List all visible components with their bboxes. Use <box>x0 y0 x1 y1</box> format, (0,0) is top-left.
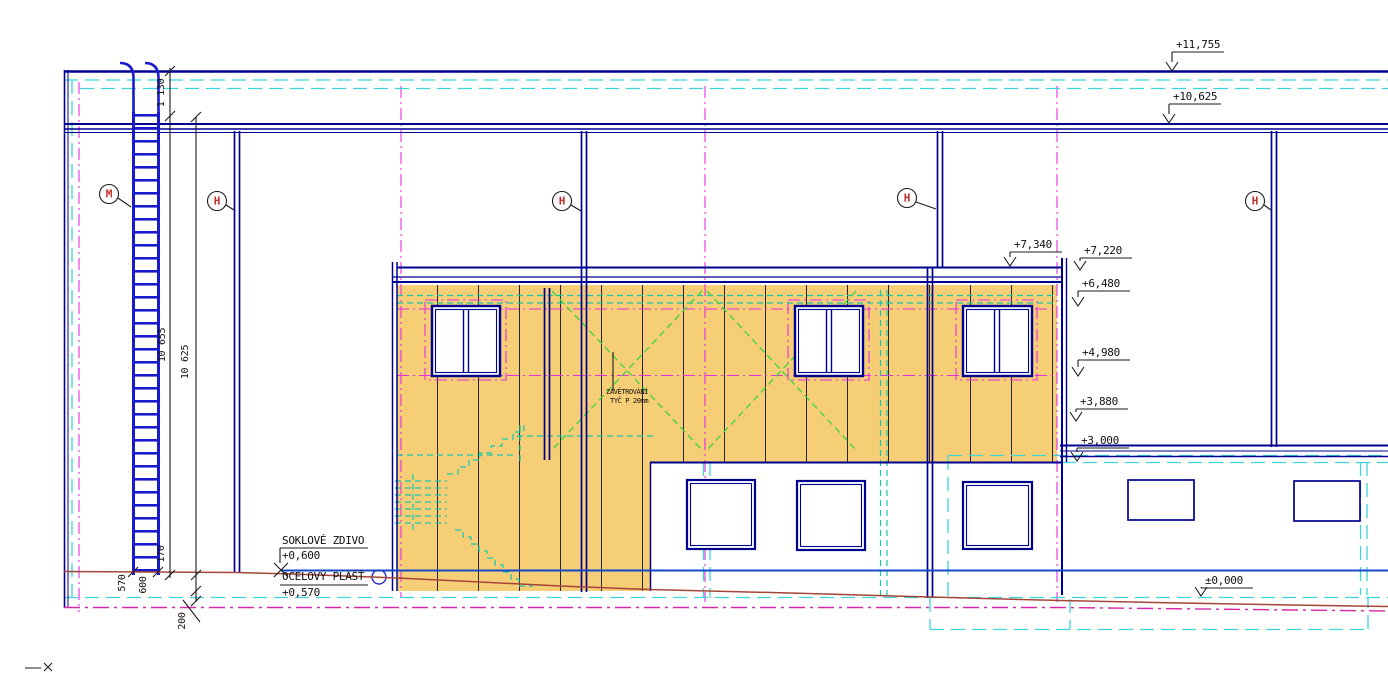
elevation-drawing-canvas: +11,755 +10,625 +7,340 +7,220 +6,480 +4,… <box>0 0 1388 694</box>
label-bracing-spec: TYČ P 20mm <box>610 398 648 405</box>
dim-total-height-outer: 10 655 <box>157 328 169 362</box>
terrain <box>64 572 1388 612</box>
elevation-annex-parapet: +7,340 <box>1014 239 1052 251</box>
dim-170: 170 <box>156 545 168 562</box>
dim-ladder-cage: 1 130 <box>156 79 168 108</box>
elevation-ground: ±0,000 <box>1205 575 1243 587</box>
dim-200: 200 <box>177 612 189 629</box>
elevation-roof-top: +11,755 <box>1176 39 1220 51</box>
grid-marker-m: M <box>106 188 113 201</box>
dim-total-height-inner: 10 625 <box>180 345 192 379</box>
label-plinth-level: +0,600 <box>282 550 320 562</box>
elevation-mid-level: +3,880 <box>1080 396 1118 408</box>
grid-marker-circles <box>100 185 1272 212</box>
grid-marker-h2: H <box>559 195 566 208</box>
label-plinth: SOKLOVÉ ZDIVO <box>282 535 364 547</box>
label-steel-shell-level: +0,570 <box>282 587 320 599</box>
elevation-annex-edge: +7,220 <box>1084 245 1122 257</box>
label-bracing: ZAVĚTROVÁNÍ <box>606 389 648 396</box>
elevation-low-roof: +3,000 <box>1081 435 1119 447</box>
elevation-eaves: +10,625 <box>1173 91 1217 103</box>
lower-windows <box>687 480 1360 550</box>
ladder <box>120 63 386 584</box>
dim-600: 600 <box>138 576 150 593</box>
elevation-window-head: +4,980 <box>1082 347 1120 359</box>
elevation-annex-soffit: +6,480 <box>1082 278 1120 290</box>
drawing-linework <box>0 0 1388 694</box>
grid-marker-h1: H <box>214 195 221 208</box>
grid-marker-h3: H <box>904 192 911 205</box>
grid-marker-h4: H <box>1252 195 1259 208</box>
dim-570: 570 <box>117 574 129 591</box>
label-steel-shell: OCELOVÝ PLÁŠŤ <box>282 571 364 583</box>
